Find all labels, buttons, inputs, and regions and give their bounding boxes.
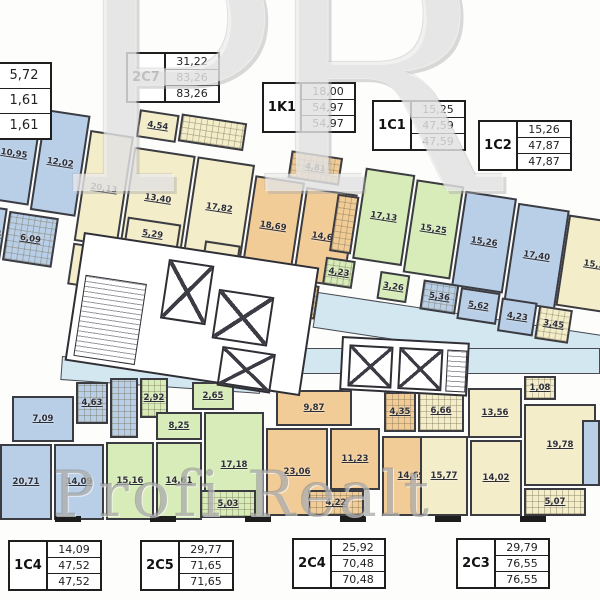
room-area-label: 8,25 <box>169 421 190 431</box>
unit-area-value: 14,09 <box>48 542 100 558</box>
room-area-label: 5,03 <box>218 499 239 509</box>
unit-table-1c2: 1C215,2647,8747,87 <box>478 120 572 171</box>
unit-name: 1K1 <box>264 84 302 131</box>
room: 11,23 <box>330 428 380 490</box>
unit-areas: 29,7976,5576,55 <box>496 540 548 587</box>
room: 4,35 <box>384 392 416 432</box>
room-area-label: 14,61 <box>166 476 193 486</box>
room: 6,66 <box>418 390 464 432</box>
unit-area-value: 47,52 <box>48 558 100 574</box>
room: 8,25 <box>156 412 202 440</box>
room-area-label: 1,08 <box>530 383 551 393</box>
unit-area-value: 15,25 <box>412 102 464 118</box>
unit-name: 2C7 <box>128 54 166 101</box>
unit-areas: 15,2647,8747,87 <box>518 122 570 169</box>
room: 15,77 <box>420 436 468 516</box>
room-area-label: 15,77 <box>431 471 458 481</box>
unit-areas: 5,721,611,61 <box>0 64 50 138</box>
unit-area-value: 47,52 <box>48 574 100 589</box>
room: 9,87 <box>276 390 352 426</box>
unit-areas: 25,9270,4870,48 <box>332 540 384 587</box>
unit-table-2c4: 2C425,9270,4870,48 <box>292 538 386 589</box>
room-area-label: 13,56 <box>482 408 509 418</box>
balcony-door-mark <box>150 516 176 522</box>
room-area-label: 5,07 <box>545 497 566 507</box>
room: 14,02 <box>470 440 522 516</box>
unit-areas: 18,0054,9754,97 <box>302 84 354 131</box>
unit-name: 1C1 <box>374 102 412 149</box>
room-area-label: 5,36 <box>428 291 450 304</box>
unit-area-value: 71,65 <box>180 558 232 574</box>
unit-area-value: 15,26 <box>518 122 570 138</box>
unit-table-1c4: 1C414,0947,5247,52 <box>8 540 102 591</box>
unit-area-value: 1,61 <box>0 89 50 114</box>
unit-area-value: 83,26 <box>166 86 218 101</box>
unit-area-value: 47,59 <box>412 118 464 134</box>
room: 7,09 <box>12 396 74 442</box>
staircase-icon <box>445 350 467 393</box>
room: 4,22 <box>308 490 364 516</box>
room-area-label: 6,66 <box>431 406 452 416</box>
unit-table-1k1: 1K118,0054,9754,97 <box>262 82 356 133</box>
room: 13,56 <box>468 388 522 438</box>
room: 4,63 <box>76 382 108 424</box>
room-area-label: 11,23 <box>342 454 369 464</box>
unit-table-2c7: 2C731,2283,2683,26 <box>126 52 220 103</box>
room-area-label: 9,87 <box>304 403 325 413</box>
unit-area-value: 76,55 <box>496 556 548 572</box>
core-block <box>339 336 470 397</box>
unit-table-partial: 5,721,611,61 <box>0 62 52 140</box>
room-area-label: 23,06 <box>284 467 311 477</box>
unit-name: 2C4 <box>294 540 332 587</box>
unit-areas: 14,0947,5247,52 <box>48 542 100 589</box>
balcony-door-mark <box>340 516 366 522</box>
room-area-label: 3,26 <box>382 281 404 294</box>
room-area-label: 19,78 <box>547 440 574 450</box>
unit-area-value: 31,22 <box>166 54 218 70</box>
elevator-shaft-icon <box>397 347 443 391</box>
elevator-shaft-icon <box>347 344 393 388</box>
unit-area-value: 54,97 <box>302 116 354 131</box>
room <box>110 378 138 438</box>
floor-plan: 10,9512,021,446,0920,134,5413,4017,825,2… <box>0 0 600 600</box>
unit-areas: 29,7771,6571,65 <box>180 542 232 589</box>
elevator-shaft-icon <box>217 346 276 394</box>
room: 5,03 <box>200 490 256 518</box>
room-area-label: 4,22 <box>326 498 347 508</box>
room <box>582 420 600 486</box>
room: 15,16 <box>106 442 154 520</box>
unit-table-1c1: 1C115,2547,5947,59 <box>372 100 466 151</box>
room: 14,61 <box>156 442 202 520</box>
balcony-door-mark <box>245 516 271 522</box>
unit-area-value: 5,72 <box>0 64 50 89</box>
unit-name: 2C5 <box>142 542 180 589</box>
room-area-label: 17,18 <box>221 460 248 470</box>
room-area-label: 5,62 <box>467 300 489 313</box>
unit-name: 1C2 <box>480 122 518 169</box>
unit-table-2c5: 2C529,7771,6571,65 <box>140 540 234 591</box>
unit-area-value: 71,65 <box>180 574 232 589</box>
balcony-door-mark <box>520 516 546 522</box>
unit-area-value: 1,61 <box>0 114 50 138</box>
elevator-shaft-icon <box>212 289 275 347</box>
unit-table-2c3: 2C329,7976,5576,55 <box>456 538 550 589</box>
room-area-label: 15,16 <box>117 476 144 486</box>
room: 1,08 <box>524 376 556 400</box>
room-area-label: 4,63 <box>82 398 103 408</box>
unit-area-value: 47,87 <box>518 138 570 154</box>
unit-area-value: 18,00 <box>302 84 354 100</box>
unit-area-value: 70,48 <box>332 572 384 587</box>
elevator-shaft-icon <box>160 259 214 325</box>
room: 5,36 <box>419 280 459 315</box>
unit-area-value: 76,55 <box>496 572 548 587</box>
room-area-label: 14,09 <box>66 477 93 487</box>
balcony-door-mark <box>55 516 81 522</box>
unit-areas: 15,2547,5947,59 <box>412 102 464 149</box>
staircase-icon <box>73 275 147 365</box>
room-area-label: 2,65 <box>203 391 224 401</box>
unit-name: 1C4 <box>10 542 48 589</box>
unit-area-value: 29,79 <box>496 540 548 556</box>
unit-area-value: 70,48 <box>332 556 384 572</box>
room: 3,45 <box>534 305 573 344</box>
unit-name: 2C3 <box>458 540 496 587</box>
unit-area-value: 47,59 <box>412 134 464 149</box>
room: 20,71 <box>0 444 52 520</box>
room-area-label: 20,71 <box>13 477 40 487</box>
unit-area-value: 47,87 <box>518 154 570 169</box>
balcony-door-mark <box>435 516 461 522</box>
unit-area-value: 54,97 <box>302 100 354 116</box>
unit-area-value: 83,26 <box>166 70 218 86</box>
unit-area-value: 25,92 <box>332 540 384 556</box>
room-area-label: 14,02 <box>483 473 510 483</box>
room-area-label: 3,45 <box>542 318 564 331</box>
room: 5,07 <box>524 488 586 516</box>
room-area-label: 2,92 <box>144 393 165 403</box>
room-area-label: 4,35 <box>390 407 411 417</box>
room-area-label: 4,23 <box>506 310 528 323</box>
room: 5,62 <box>456 287 500 325</box>
room: 4,23 <box>497 297 538 336</box>
unit-areas: 31,2283,2683,26 <box>166 54 218 101</box>
unit-area-value: 29,77 <box>180 542 232 558</box>
room-area-label: 7,09 <box>33 414 54 424</box>
room: 14,09 <box>54 444 104 520</box>
